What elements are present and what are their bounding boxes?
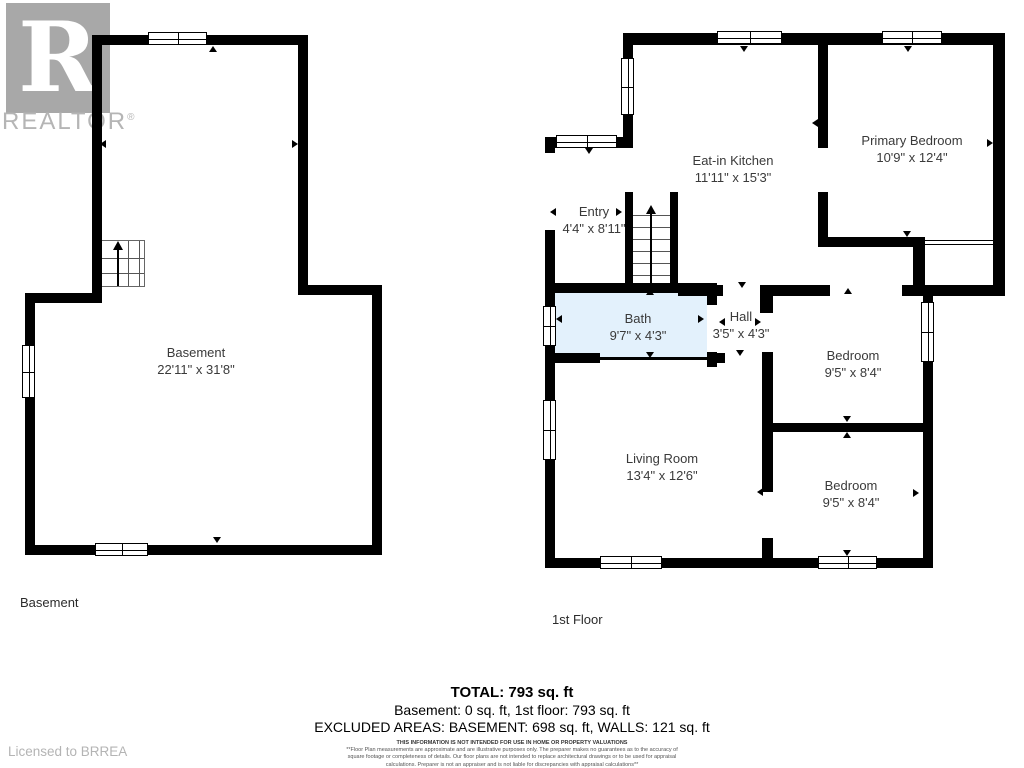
stair-tread bbox=[633, 239, 670, 240]
stair-tread bbox=[128, 241, 129, 286]
dimension-tick bbox=[736, 350, 744, 356]
wall bbox=[913, 237, 925, 296]
window bbox=[95, 543, 148, 556]
dimension-tick bbox=[209, 46, 217, 52]
room-dimensions: 9'5" x 8'4" bbox=[823, 494, 880, 511]
dimension-tick bbox=[740, 46, 748, 52]
room-name: Eat-in Kitchen bbox=[693, 152, 774, 169]
stair-tread bbox=[633, 275, 670, 276]
wall bbox=[92, 35, 102, 303]
room-dimensions: 10'9" x 12'4" bbox=[861, 149, 962, 166]
wall bbox=[25, 293, 35, 555]
dimension-tick bbox=[843, 432, 851, 438]
stairs-direction-arrow-head bbox=[113, 241, 123, 250]
window bbox=[921, 302, 934, 362]
wall bbox=[818, 33, 828, 148]
wall bbox=[545, 137, 555, 153]
room-dimensions: 13'4" x 12'6" bbox=[626, 467, 698, 484]
first-floor-caption: 1st Floor bbox=[552, 612, 603, 627]
dimension-tick bbox=[755, 318, 761, 326]
basement-caption: Basement bbox=[20, 595, 79, 610]
wall bbox=[707, 352, 717, 367]
wall bbox=[762, 538, 773, 568]
window bbox=[22, 345, 35, 398]
wall bbox=[993, 33, 1005, 296]
dimension-tick bbox=[738, 282, 746, 288]
dimension-tick bbox=[646, 289, 654, 295]
summary-block: TOTAL: 793 sq. ft Basement: 0 sq. ft, 1s… bbox=[0, 684, 1024, 768]
window bbox=[148, 32, 207, 45]
room-label-bedroom-top: Bedroom 9'5" x 8'4" bbox=[825, 347, 882, 381]
room-dimensions: 4'4" x 8'11" bbox=[562, 220, 625, 237]
room-name: Basement bbox=[157, 344, 235, 361]
wall bbox=[707, 285, 717, 305]
wall bbox=[548, 353, 600, 363]
dimension-tick bbox=[556, 315, 562, 323]
dimension-tick bbox=[100, 140, 106, 148]
window bbox=[600, 556, 662, 569]
total-area: TOTAL: 793 sq. ft bbox=[0, 684, 1024, 701]
window bbox=[543, 306, 556, 346]
disclaimer-body: **Floor Plan measurements are approximat… bbox=[340, 747, 685, 768]
disclaimer-title: THIS INFORMATION IS NOT INTENDED FOR USE… bbox=[0, 740, 1024, 746]
stairs-direction-arrow-head bbox=[646, 205, 656, 214]
wall bbox=[298, 285, 382, 295]
room-name: Bedroom bbox=[823, 477, 880, 494]
window bbox=[818, 556, 877, 569]
stair-tread bbox=[633, 215, 670, 216]
wall bbox=[625, 192, 633, 293]
room-label-living-room: Living Room 13'4" x 12'6" bbox=[626, 450, 698, 484]
room-dimensions: 9'7" x 4'3" bbox=[610, 327, 667, 344]
stairs-direction-arrow bbox=[117, 248, 119, 286]
window bbox=[717, 31, 782, 44]
dimension-tick bbox=[757, 488, 763, 496]
excluded-areas: EXCLUDED AREAS: BASEMENT: 698 sq. ft, WA… bbox=[0, 719, 1024, 735]
dimension-tick bbox=[719, 318, 725, 326]
dimension-tick bbox=[812, 119, 818, 127]
stair-tread bbox=[96, 258, 144, 259]
stairs-direction-arrow bbox=[650, 212, 652, 288]
wall bbox=[823, 237, 918, 247]
room-name: Living Room bbox=[626, 450, 698, 467]
wall bbox=[298, 35, 308, 295]
dimension-tick bbox=[646, 352, 654, 358]
realtor-logo-letter: R bbox=[18, 10, 98, 106]
room-label-bedroom-bottom: Bedroom 9'5" x 8'4" bbox=[823, 477, 880, 511]
dimension-tick bbox=[913, 489, 919, 497]
room-dimensions: 11'11" x 15'3" bbox=[693, 169, 774, 186]
wall bbox=[762, 352, 773, 492]
wall bbox=[623, 33, 1005, 45]
room-name: Bedroom bbox=[825, 347, 882, 364]
dimension-tick bbox=[843, 550, 851, 556]
room-dimensions: 22'11" x 31'8" bbox=[157, 361, 235, 378]
room-dimensions: 3'5" x 4'3" bbox=[713, 325, 770, 342]
stair-tread bbox=[139, 241, 140, 286]
room-label-bath: Bath 9'7" x 4'3" bbox=[610, 310, 667, 344]
wall bbox=[766, 423, 933, 432]
floor-areas: Basement: 0 sq. ft, 1st floor: 793 sq. f… bbox=[0, 702, 1024, 718]
license-text: Licensed to BRREA bbox=[8, 744, 127, 759]
window bbox=[543, 400, 556, 460]
dimension-tick bbox=[844, 288, 852, 294]
stair-tread bbox=[633, 251, 670, 252]
stair-tread bbox=[633, 227, 670, 228]
window bbox=[621, 58, 634, 115]
dimension-tick bbox=[698, 315, 704, 323]
room-label-basement: Basement 22'11" x 31'8" bbox=[157, 344, 235, 378]
realtor-wordmark: REALTOR® bbox=[2, 108, 137, 136]
stair-tread bbox=[96, 273, 144, 274]
room-label-kitchen: Eat-in Kitchen 11'11" x 15'3" bbox=[693, 152, 774, 186]
dimension-tick bbox=[843, 416, 851, 422]
dimension-tick bbox=[904, 46, 912, 52]
dimension-tick bbox=[616, 208, 622, 216]
room-name: Bath bbox=[610, 310, 667, 327]
window bbox=[556, 135, 617, 148]
wall bbox=[25, 293, 97, 303]
first-floor-stairs bbox=[633, 207, 670, 293]
wall bbox=[670, 192, 678, 293]
wall bbox=[717, 353, 725, 363]
registered-trademark-icon: ® bbox=[127, 112, 136, 123]
wall bbox=[372, 285, 382, 555]
wall bbox=[545, 230, 555, 290]
low-divider-line bbox=[925, 240, 993, 245]
room-label-primary-bedroom: Primary Bedroom 10'9" x 12'4" bbox=[861, 132, 962, 166]
room-name: Primary Bedroom bbox=[861, 132, 962, 149]
dimension-tick bbox=[987, 139, 993, 147]
stair-tread bbox=[633, 263, 670, 264]
dimension-tick bbox=[213, 537, 221, 543]
dimension-tick bbox=[585, 148, 593, 154]
dimension-tick bbox=[903, 231, 911, 237]
wall bbox=[25, 545, 382, 555]
wall bbox=[773, 285, 830, 296]
floor-plan-page: R REALTOR® Basement 22'11" x 31'8" bbox=[0, 0, 1024, 768]
dimension-tick bbox=[292, 140, 298, 148]
window bbox=[882, 31, 942, 44]
room-dimensions: 9'5" x 8'4" bbox=[825, 364, 882, 381]
dimension-tick bbox=[550, 208, 556, 216]
